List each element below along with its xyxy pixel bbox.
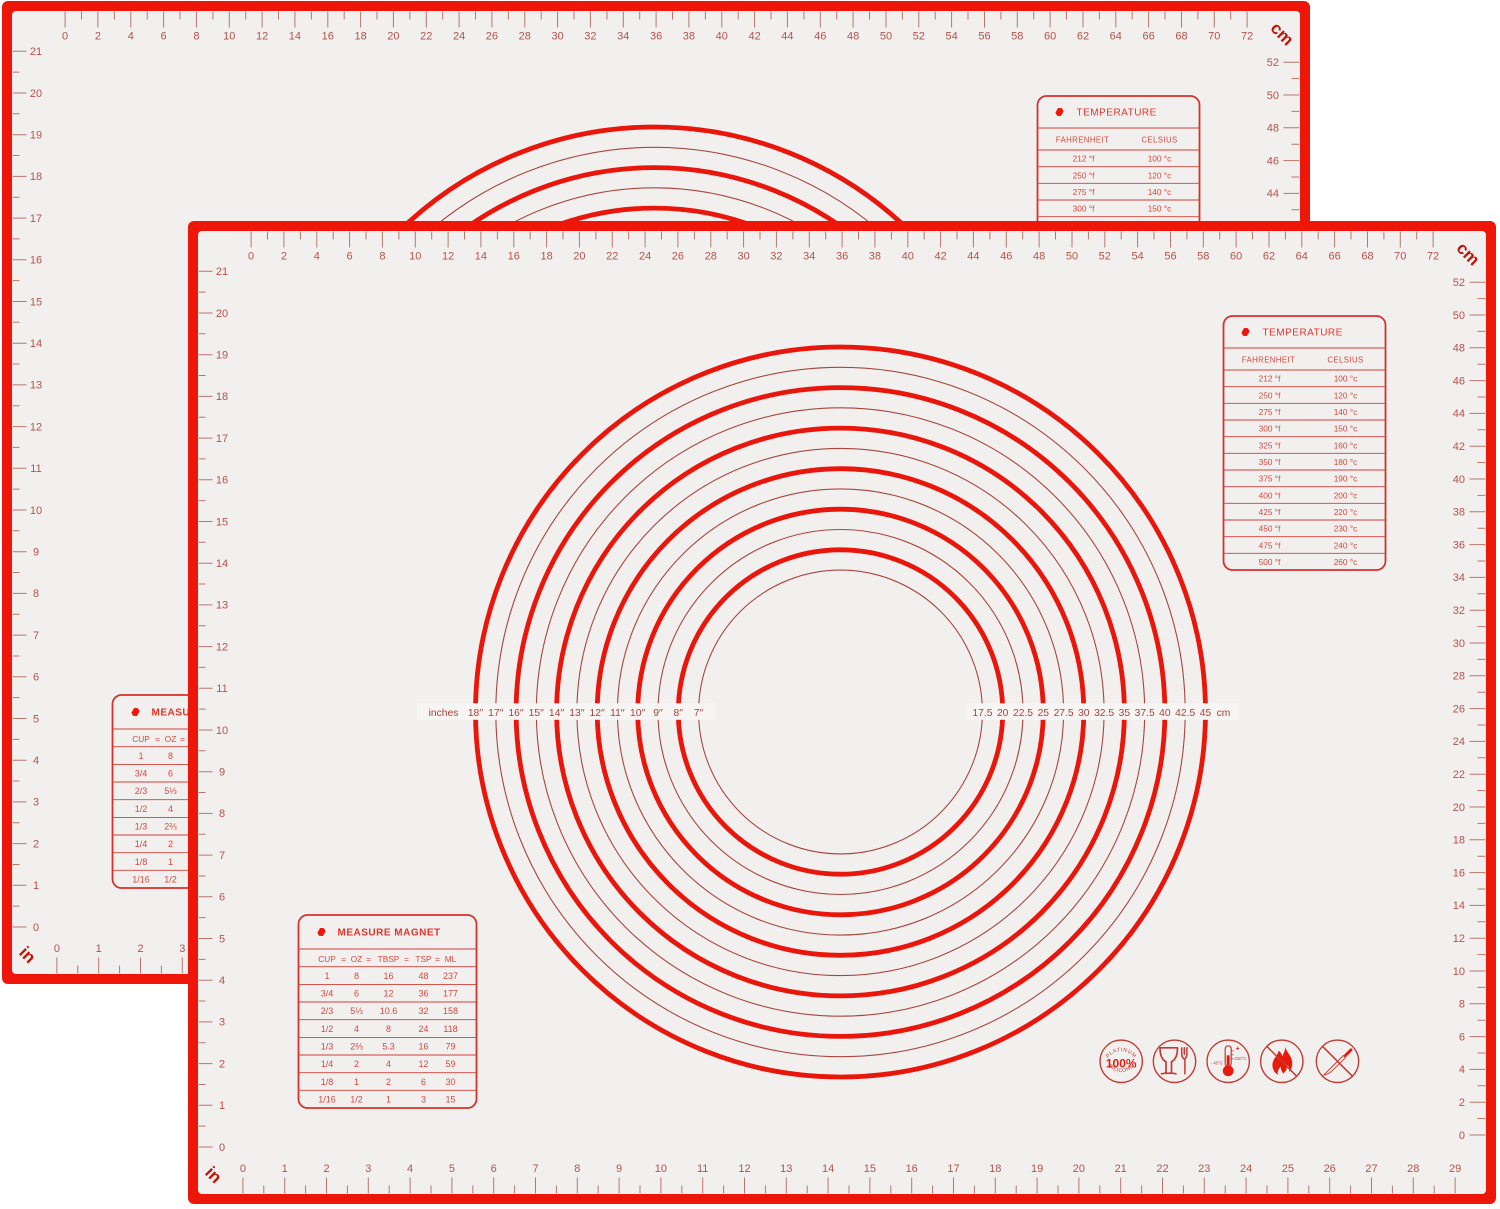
- svg-text:15: 15: [215, 516, 227, 528]
- svg-text:8: 8: [168, 750, 173, 760]
- svg-text:17: 17: [215, 433, 227, 445]
- svg-text:21: 21: [215, 266, 227, 278]
- svg-text:14: 14: [215, 558, 227, 570]
- svg-text:1: 1: [138, 750, 143, 760]
- svg-text:22: 22: [420, 30, 432, 42]
- svg-text:FAHRENHEIT: FAHRENHEIT: [1241, 356, 1294, 365]
- svg-text:200 °c: 200 °c: [1333, 490, 1357, 500]
- svg-text:10: 10: [409, 251, 421, 263]
- svg-text:54: 54: [945, 30, 957, 42]
- svg-text:34: 34: [803, 251, 815, 263]
- svg-text:3: 3: [179, 943, 185, 955]
- svg-text:42: 42: [748, 30, 760, 42]
- svg-text:2: 2: [137, 943, 143, 955]
- svg-text:40: 40: [901, 251, 913, 263]
- svg-text:6: 6: [33, 671, 39, 683]
- svg-text:37.5: 37.5: [1134, 708, 1154, 719]
- svg-text:23: 23: [1198, 1163, 1210, 1175]
- svg-text:14: 14: [821, 1163, 833, 1175]
- svg-text:2: 2: [385, 1077, 390, 1087]
- svg-text:8: 8: [385, 1024, 390, 1034]
- svg-text:50: 50: [880, 30, 892, 42]
- svg-text:12: 12: [215, 641, 227, 653]
- svg-text:158: 158: [442, 1006, 457, 1016]
- svg-text:10: 10: [223, 30, 235, 42]
- svg-text:42.5: 42.5: [1175, 708, 1195, 719]
- svg-text:26: 26: [671, 251, 683, 263]
- svg-text:28: 28: [519, 30, 531, 42]
- svg-text:66: 66: [1328, 251, 1340, 263]
- svg-text:FAHRENHEIT: FAHRENHEIT: [1056, 135, 1109, 144]
- svg-text:300 °f: 300 °f: [1073, 203, 1095, 213]
- svg-text:6: 6: [490, 1163, 496, 1175]
- svg-text:1: 1: [281, 1163, 287, 1175]
- svg-text:62: 62: [1262, 251, 1274, 263]
- svg-text:12′′: 12′′: [589, 708, 604, 719]
- svg-text:18: 18: [989, 1163, 1001, 1175]
- svg-text:12: 12: [383, 989, 393, 999]
- svg-text:40: 40: [1159, 708, 1171, 719]
- svg-text:10.6: 10.6: [379, 1006, 397, 1016]
- svg-text:29: 29: [1448, 1163, 1460, 1175]
- svg-text:220 °c: 220 °c: [1333, 507, 1357, 517]
- svg-text:56: 56: [978, 30, 990, 42]
- svg-text:10′′: 10′′: [630, 708, 645, 719]
- svg-text:18: 18: [30, 171, 42, 183]
- svg-text:32: 32: [584, 30, 596, 42]
- svg-text:12: 12: [1452, 933, 1464, 945]
- svg-text:4: 4: [218, 975, 224, 987]
- svg-text:CUP: CUP: [318, 954, 336, 964]
- svg-text:7: 7: [532, 1163, 538, 1175]
- svg-text:20: 20: [30, 87, 42, 99]
- svg-text:=: =: [155, 733, 160, 743]
- svg-text:325 °f: 325 °f: [1258, 440, 1280, 450]
- svg-text:30: 30: [737, 251, 749, 263]
- svg-text:150 °c: 150 °c: [1333, 424, 1357, 434]
- svg-text:150 °c: 150 °c: [1148, 203, 1172, 213]
- svg-text:12: 12: [441, 251, 453, 263]
- svg-text:425 °f: 425 °f: [1258, 507, 1280, 517]
- svg-text:2: 2: [1458, 1097, 1464, 1109]
- svg-text:27.5: 27.5: [1053, 708, 1073, 719]
- svg-text:10: 10: [654, 1163, 666, 1175]
- svg-text:26: 26: [1323, 1163, 1335, 1175]
- svg-text:140 °c: 140 °c: [1148, 187, 1172, 197]
- svg-text:20: 20: [573, 251, 585, 263]
- svg-text:48: 48: [847, 30, 859, 42]
- svg-text:79: 79: [445, 1042, 455, 1052]
- svg-text:36: 36: [418, 989, 428, 999]
- svg-text:2: 2: [280, 251, 286, 263]
- svg-text:250 °f: 250 °f: [1258, 390, 1280, 400]
- svg-text:8: 8: [1458, 999, 1464, 1011]
- svg-text:1: 1: [324, 971, 329, 981]
- svg-text:9′′: 9′′: [653, 708, 663, 719]
- svg-text:350 °f: 350 °f: [1258, 457, 1280, 467]
- svg-text:52: 52: [1098, 251, 1110, 263]
- svg-text:32: 32: [770, 251, 782, 263]
- svg-text:32: 32: [418, 1006, 428, 1016]
- svg-text:16: 16: [1452, 867, 1464, 879]
- svg-text:20: 20: [1072, 1163, 1084, 1175]
- svg-text:=: =: [435, 954, 440, 964]
- svg-text:4: 4: [1458, 1064, 1464, 1076]
- svg-text:OZ: OZ: [165, 733, 177, 743]
- svg-text:3: 3: [33, 796, 39, 808]
- svg-text:120 °c: 120 °c: [1333, 390, 1357, 400]
- svg-text:46: 46: [1452, 375, 1464, 387]
- svg-text:14: 14: [30, 338, 42, 350]
- svg-text:22: 22: [606, 251, 618, 263]
- svg-text:275 °f: 275 °f: [1258, 407, 1280, 417]
- svg-text:25: 25: [1281, 1163, 1293, 1175]
- svg-text:TEMPERATURE: TEMPERATURE: [1077, 107, 1157, 118]
- svg-text:10: 10: [30, 504, 42, 516]
- svg-text:56: 56: [1164, 251, 1176, 263]
- svg-text:OZ: OZ: [350, 954, 362, 964]
- svg-text:72: 72: [1426, 251, 1438, 263]
- svg-text:1/16: 1/16: [318, 1095, 336, 1105]
- svg-text:12: 12: [256, 30, 268, 42]
- svg-text:0: 0: [239, 1163, 245, 1175]
- svg-text:50: 50: [1452, 310, 1464, 322]
- svg-text:275 °f: 275 °f: [1073, 187, 1095, 197]
- svg-text:24: 24: [418, 1024, 428, 1034]
- svg-text:20: 20: [996, 708, 1008, 719]
- svg-text:6: 6: [420, 1077, 425, 1087]
- svg-text:12: 12: [30, 421, 42, 433]
- svg-text:0: 0: [62, 30, 68, 42]
- svg-text:35: 35: [1118, 708, 1130, 719]
- svg-text:7: 7: [33, 629, 39, 641]
- svg-text:2: 2: [95, 30, 101, 42]
- svg-text:5: 5: [218, 933, 224, 945]
- svg-text:54: 54: [1131, 251, 1143, 263]
- svg-text:6: 6: [161, 30, 167, 42]
- svg-text:100 °c: 100 °c: [1333, 374, 1357, 384]
- svg-text:1/2: 1/2: [320, 1024, 333, 1034]
- svg-text:21: 21: [1114, 1163, 1126, 1175]
- svg-text:=: =: [341, 954, 346, 964]
- svg-text:0: 0: [218, 1142, 224, 1154]
- svg-text:TBSP: TBSP: [377, 954, 399, 964]
- svg-text:160 °c: 160 °c: [1333, 440, 1357, 450]
- svg-text:11: 11: [216, 683, 227, 695]
- svg-text:6: 6: [168, 768, 173, 778]
- svg-text:28: 28: [704, 251, 716, 263]
- svg-text:28: 28: [1452, 671, 1464, 683]
- svg-text:7: 7: [218, 850, 224, 862]
- svg-text:16: 16: [30, 254, 42, 266]
- svg-text:1/3: 1/3: [320, 1042, 333, 1052]
- svg-text:375 °f: 375 °f: [1258, 474, 1280, 484]
- svg-text:5: 5: [33, 713, 39, 725]
- svg-text:6: 6: [1458, 1031, 1464, 1043]
- svg-text:1/4: 1/4: [135, 839, 148, 849]
- svg-text:18′′: 18′′: [467, 708, 482, 719]
- svg-text:27: 27: [1365, 1163, 1377, 1175]
- svg-text:8: 8: [33, 588, 39, 600]
- svg-text:16′′: 16′′: [508, 708, 523, 719]
- svg-text:34: 34: [617, 30, 629, 42]
- svg-text:26: 26: [486, 30, 498, 42]
- svg-text:66: 66: [1142, 30, 1154, 42]
- svg-text:48: 48: [418, 971, 428, 981]
- svg-text:2: 2: [353, 1059, 358, 1069]
- svg-text:72: 72: [1241, 30, 1253, 42]
- svg-text:17: 17: [947, 1163, 959, 1175]
- svg-text:500 °f: 500 °f: [1258, 557, 1280, 567]
- svg-text:10: 10: [1452, 966, 1464, 978]
- svg-text:17′′: 17′′: [488, 708, 503, 719]
- svg-text:36: 36: [650, 30, 662, 42]
- svg-text:22.5: 22.5: [1012, 708, 1032, 719]
- svg-text:7′′: 7′′: [693, 708, 703, 719]
- svg-text:1: 1: [168, 856, 173, 866]
- svg-text:48: 48: [1267, 122, 1279, 134]
- svg-text:12: 12: [738, 1163, 750, 1175]
- svg-text:16: 16: [905, 1163, 917, 1175]
- svg-text:237: 237: [442, 971, 457, 981]
- svg-text:32.5: 32.5: [1094, 708, 1114, 719]
- svg-text:CUP: CUP: [132, 733, 150, 743]
- svg-text:38: 38: [683, 30, 695, 42]
- svg-text:40: 40: [1452, 474, 1464, 486]
- svg-text:30: 30: [1078, 708, 1090, 719]
- svg-text:9: 9: [616, 1163, 622, 1175]
- svg-text:17.5: 17.5: [972, 708, 992, 719]
- svg-text:- 40°C: - 40°C: [1210, 1060, 1222, 1065]
- svg-text:6: 6: [353, 989, 358, 999]
- svg-text:12: 12: [418, 1059, 428, 1069]
- svg-text:58: 58: [1197, 251, 1209, 263]
- svg-text:2: 2: [168, 839, 173, 849]
- svg-text:11: 11: [696, 1163, 707, 1175]
- svg-text:8′′: 8′′: [673, 708, 683, 719]
- svg-text:60: 60: [1229, 251, 1241, 263]
- svg-text:140 °c: 140 °c: [1333, 407, 1357, 417]
- svg-text:52: 52: [1267, 57, 1279, 69]
- svg-text:240 °c: 240 °c: [1333, 540, 1357, 550]
- svg-text:15′′: 15′′: [528, 708, 543, 719]
- svg-text:1/4: 1/4: [320, 1059, 333, 1069]
- svg-text:2⅔: 2⅔: [350, 1042, 363, 1052]
- svg-text:19: 19: [215, 350, 227, 362]
- svg-text:26: 26: [1452, 703, 1464, 715]
- svg-text:20: 20: [1452, 802, 1464, 814]
- svg-text:2: 2: [33, 838, 39, 850]
- svg-text:1/8: 1/8: [320, 1077, 333, 1087]
- svg-text:1: 1: [96, 943, 102, 955]
- svg-text:18: 18: [1452, 835, 1464, 847]
- svg-text:2⅔: 2⅔: [164, 821, 177, 831]
- svg-text:1/3: 1/3: [135, 821, 148, 831]
- svg-text:24: 24: [453, 30, 465, 42]
- svg-text:59: 59: [445, 1059, 455, 1069]
- svg-text:3/4: 3/4: [320, 989, 333, 999]
- svg-text:48: 48: [1032, 251, 1044, 263]
- svg-text:40: 40: [716, 30, 728, 42]
- svg-text:450 °f: 450 °f: [1258, 524, 1280, 534]
- svg-text:50: 50: [1267, 89, 1279, 101]
- svg-text:46: 46: [1267, 155, 1279, 167]
- svg-text:300 °f: 300 °f: [1258, 424, 1280, 434]
- svg-text:1/16: 1/16: [132, 874, 150, 884]
- svg-text:44: 44: [781, 30, 793, 42]
- svg-text:=: =: [366, 954, 371, 964]
- svg-text:14: 14: [289, 30, 301, 42]
- svg-text:2/3: 2/3: [135, 786, 148, 796]
- svg-text:14: 14: [474, 251, 486, 263]
- svg-text:17: 17: [30, 212, 42, 224]
- svg-text:45: 45: [1199, 708, 1211, 719]
- svg-text:15: 15: [445, 1095, 455, 1105]
- svg-text:3: 3: [218, 1017, 224, 1029]
- svg-text:2/3: 2/3: [320, 1006, 333, 1016]
- svg-text:2: 2: [323, 1163, 329, 1175]
- svg-text:0: 0: [248, 251, 254, 263]
- svg-text:180 °c: 180 °c: [1333, 457, 1357, 467]
- svg-text:30: 30: [445, 1077, 455, 1087]
- svg-text:64: 64: [1295, 251, 1307, 263]
- svg-text:4: 4: [407, 1163, 413, 1175]
- svg-text:34: 34: [1452, 572, 1464, 584]
- svg-text:190 °c: 190 °c: [1333, 474, 1357, 484]
- svg-text:1: 1: [385, 1095, 390, 1105]
- svg-text:4: 4: [385, 1059, 390, 1069]
- svg-text:6: 6: [346, 251, 352, 263]
- svg-text:1/2: 1/2: [135, 803, 148, 813]
- svg-text:32: 32: [1452, 605, 1464, 617]
- svg-text:0: 0: [1458, 1130, 1464, 1142]
- svg-text:TSP: TSP: [415, 954, 432, 964]
- svg-text:22: 22: [1452, 769, 1464, 781]
- svg-text:25: 25: [1037, 708, 1049, 719]
- svg-text:14: 14: [1452, 900, 1464, 912]
- svg-text:MEASURE MAGNET: MEASURE MAGNET: [337, 928, 440, 939]
- svg-text:16: 16: [383, 971, 393, 981]
- svg-text:5.3: 5.3: [382, 1042, 395, 1052]
- svg-text:9: 9: [218, 767, 224, 779]
- svg-text:70: 70: [1208, 30, 1220, 42]
- svg-text:13: 13: [780, 1163, 792, 1175]
- svg-text:13: 13: [215, 600, 227, 612]
- svg-text:30: 30: [551, 30, 563, 42]
- svg-text:28: 28: [1407, 1163, 1419, 1175]
- svg-text:1/2: 1/2: [164, 874, 177, 884]
- svg-text:250 °f: 250 °f: [1073, 170, 1095, 180]
- svg-text:10: 10: [215, 725, 227, 737]
- svg-text:16: 16: [322, 30, 334, 42]
- svg-text:8: 8: [353, 971, 358, 981]
- svg-text:1: 1: [33, 880, 39, 892]
- svg-text:16: 16: [418, 1042, 428, 1052]
- svg-text:8: 8: [218, 808, 224, 820]
- svg-text:2: 2: [218, 1058, 224, 1070]
- svg-text:13′′: 13′′: [569, 708, 584, 719]
- svg-text:CELSIUS: CELSIUS: [1141, 135, 1177, 144]
- svg-text:=: =: [404, 954, 409, 964]
- svg-text:16: 16: [215, 475, 227, 487]
- svg-text:ML: ML: [444, 954, 456, 964]
- svg-text:38: 38: [1452, 507, 1464, 519]
- svg-text:38: 38: [868, 251, 880, 263]
- svg-text:42: 42: [1452, 441, 1464, 453]
- svg-text:cm: cm: [1216, 708, 1230, 719]
- svg-text:19: 19: [1030, 1163, 1042, 1175]
- svg-text:4: 4: [128, 30, 134, 42]
- svg-text:15: 15: [30, 296, 42, 308]
- svg-text:4: 4: [33, 755, 39, 767]
- svg-text:20: 20: [387, 30, 399, 42]
- svg-text:42: 42: [934, 251, 946, 263]
- svg-text:24: 24: [638, 251, 650, 263]
- svg-text:9: 9: [33, 546, 39, 558]
- svg-text:24: 24: [1452, 736, 1464, 748]
- svg-text:100%: 100%: [1105, 1056, 1136, 1070]
- svg-text:58: 58: [1011, 30, 1023, 42]
- svg-text:44: 44: [1267, 188, 1279, 200]
- svg-text:21: 21: [30, 46, 42, 58]
- svg-text:8: 8: [574, 1163, 580, 1175]
- svg-text:6: 6: [218, 892, 224, 904]
- svg-text:68: 68: [1361, 251, 1373, 263]
- svg-text:20: 20: [215, 308, 227, 320]
- svg-text:0: 0: [54, 943, 60, 955]
- svg-text:230 °c: 230 °c: [1333, 524, 1357, 534]
- svg-text:15: 15: [863, 1163, 875, 1175]
- svg-text:4: 4: [353, 1024, 358, 1034]
- svg-text:TEMPERATURE: TEMPERATURE: [1262, 328, 1342, 339]
- svg-text:18: 18: [540, 251, 552, 263]
- svg-text:62: 62: [1077, 30, 1089, 42]
- svg-text:212 °f: 212 °f: [1258, 374, 1280, 384]
- svg-text:8: 8: [379, 251, 385, 263]
- svg-text:3/4: 3/4: [135, 768, 148, 778]
- svg-text:24: 24: [1239, 1163, 1251, 1175]
- svg-text:1/8: 1/8: [135, 856, 148, 866]
- svg-text:4: 4: [168, 803, 173, 813]
- svg-text:30: 30: [1452, 638, 1464, 650]
- svg-text:inches: inches: [428, 708, 458, 719]
- svg-text:CELSIUS: CELSIUS: [1327, 356, 1363, 365]
- svg-text:0: 0: [33, 921, 39, 933]
- svg-text:3: 3: [420, 1095, 425, 1105]
- svg-text:5⅓: 5⅓: [350, 1006, 363, 1016]
- svg-text:8: 8: [193, 30, 199, 42]
- svg-text:36: 36: [1452, 539, 1464, 551]
- svg-text:64: 64: [1110, 30, 1122, 42]
- svg-text:100 °c: 100 °c: [1148, 153, 1172, 163]
- svg-text:5⅓: 5⅓: [164, 786, 177, 796]
- svg-text:16: 16: [507, 251, 519, 263]
- svg-text:48: 48: [1452, 343, 1464, 355]
- svg-text:44: 44: [1452, 408, 1464, 420]
- svg-text:177: 177: [442, 989, 457, 999]
- svg-text:52: 52: [1452, 277, 1464, 289]
- svg-text:36: 36: [835, 251, 847, 263]
- svg-text:230°C: 230°C: [1234, 1056, 1246, 1061]
- svg-text:68: 68: [1175, 30, 1187, 42]
- svg-text:44: 44: [967, 251, 979, 263]
- svg-text:14′′: 14′′: [548, 708, 563, 719]
- svg-text:22: 22: [1156, 1163, 1168, 1175]
- svg-text:11: 11: [30, 463, 41, 475]
- svg-text:120 °c: 120 °c: [1148, 170, 1172, 180]
- svg-text:19: 19: [30, 129, 42, 141]
- svg-text:11′′: 11′′: [610, 708, 625, 719]
